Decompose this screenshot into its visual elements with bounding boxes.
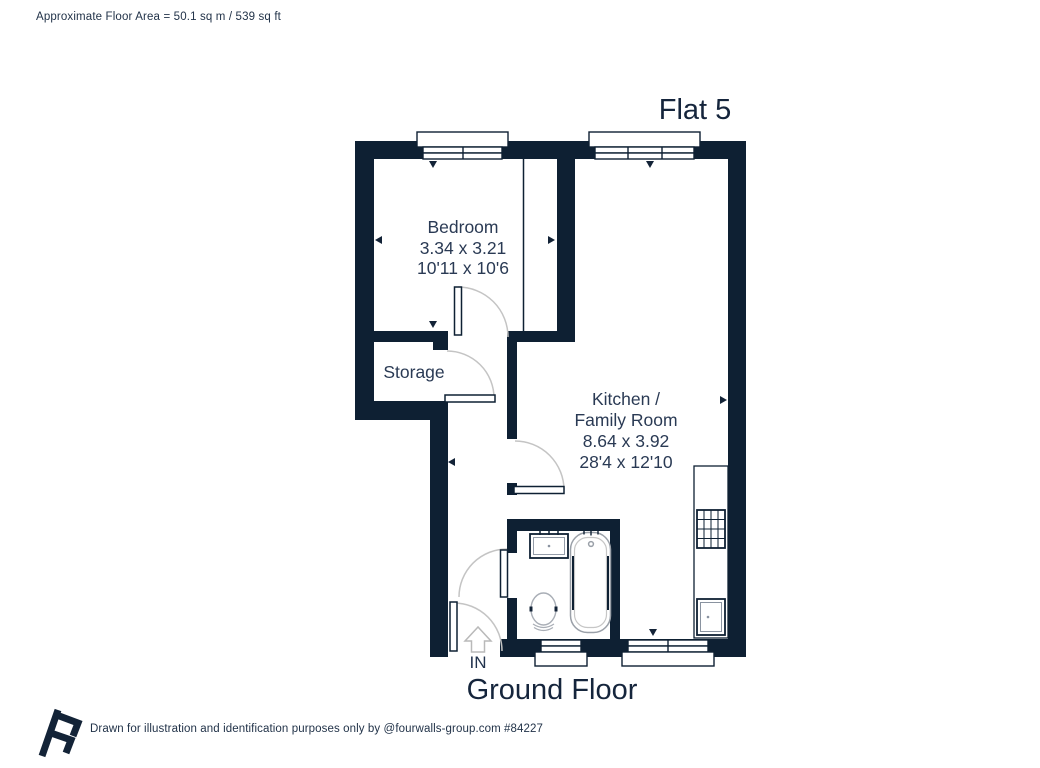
bathroom-door [459,549,508,597]
walls [355,141,746,657]
wall-bedroom-bottom-stub [433,331,448,350]
floorplan-page: Approximate Floor Area = 50.1 sq m / 539… [0,0,1040,768]
bedroom-door [455,287,509,337]
flat-title: Flat 5 [659,94,732,126]
wall-hall-kitchen [507,342,517,439]
storage-door [445,351,495,402]
hob [697,510,725,548]
bedroom-size-imperial: 10'11 x 10'6 [417,258,509,278]
bathroom-window [535,640,587,666]
kitchen-label-line1: Kitchen / [592,389,660,409]
wall-right [728,141,746,657]
floorplan-drawing: Flat 5 Bedroom 3.34 x 3.21 10'11 x 10'6 … [0,0,1040,768]
wall-hall-bath-lower [507,598,517,639]
fourwalls-logo [30,700,86,762]
wall-bathroom-right [610,519,620,639]
kitchen-size-imperial: 28'4 x 12'10 [579,452,673,472]
kitchen-sink [697,599,725,635]
wall-bathroom-top [507,519,620,531]
credit-text: Drawn for illustration and identificatio… [90,723,543,735]
entry-arrow-icon [465,627,491,652]
kitchen-size-metric: 8.64 x 3.92 [583,431,670,451]
wall-lower-left [430,401,448,657]
storage-label: Storage [383,362,444,382]
wall-left [355,141,374,420]
basin [530,530,568,559]
entry-label: IN [470,653,487,672]
wall-hall-bath-upper [507,531,517,553]
wall-bedroom-bottom-left [374,331,433,342]
wall-bedroom-bottom-right [507,331,564,342]
kitchen-top-window [589,132,700,159]
bathtub [571,529,611,633]
toilet [530,593,558,631]
bedroom-window [417,132,508,159]
floor-label: Ground Floor [467,674,638,706]
bedroom-label: Bedroom [427,217,498,237]
wall-kitchen-left [557,141,575,342]
kitchen-bottom-window [622,640,714,666]
bedroom-size-metric: 3.34 x 3.21 [420,238,507,258]
kitchen-door [514,441,564,494]
kitchen-label-line2: Family Room [574,410,677,430]
